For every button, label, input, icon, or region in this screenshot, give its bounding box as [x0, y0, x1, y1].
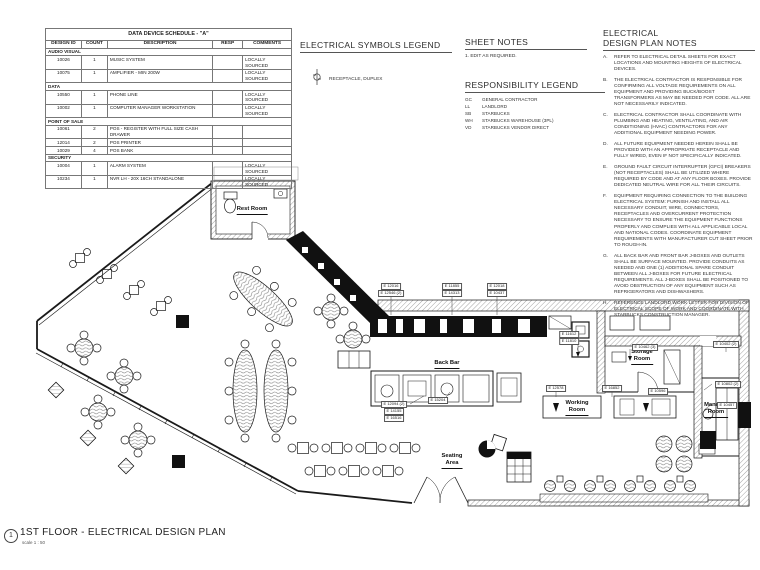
symbol-legend-item: RECEPTACLE, DUPLEX — [312, 69, 452, 90]
schedule-row: 100612POS - REGISTER WITH FULL SIZE CASH… — [46, 125, 292, 138]
entry-doors — [414, 477, 468, 503]
back-bar-counter — [286, 231, 547, 337]
north-symbol — [479, 434, 507, 457]
center-seating — [221, 258, 420, 477]
left-wing-seating — [48, 249, 189, 474]
front-bar — [338, 351, 521, 406]
design-notes-panel: ELECTRICAL DESIGN PLAN NOTES A.REFER TO … — [603, 28, 755, 324]
sheet-notes-list: 1. EDIT AS REQUIRED. — [465, 54, 587, 60]
responsibility-item: VDSTARBUCKS VENDOR DIRECT — [465, 125, 605, 132]
responsibility-item: LLLANDLORD — [465, 104, 605, 111]
design-note: A.REFER TO ELECTRICAL DETAIL SHEETS FOR … — [603, 55, 755, 73]
symbols-legend-panel: ELECTRICAL SYMBOLS LEGEND RECEPTACLE, DU… — [300, 40, 452, 90]
responsibility-legend-title: RESPONSIBILITY LEGEND — [465, 80, 605, 93]
design-note: D.ALL FUTURE EQUIPMENT NEEDED HEREIN SHA… — [603, 142, 755, 160]
schedule-title: DATA DEVICE SCHEDULE - "A" — [46, 29, 292, 41]
sheet-note: 1. EDIT AS REQUIRED. — [465, 54, 587, 60]
responsibility-legend-panel: RESPONSIBILITY LEGEND GCGENERAL CONTRACT… — [465, 80, 605, 131]
schedule-section-row: SECURITY — [46, 154, 292, 162]
schedule-row: 100261MUSIC SYSTEMLOCALLY SOURCED — [46, 56, 292, 69]
design-note: G.ALL BACK BAR AND FRONT BAR J-BOXES AND… — [603, 254, 755, 297]
responsibility-item: WHSTARBUCKS WAREHOUSE (3PL) — [465, 118, 605, 125]
schedule-row: 120142POS PRINTER — [46, 139, 292, 147]
plan-number-badge: 1 — [4, 529, 18, 543]
right-seating — [507, 431, 716, 502]
data-device-schedule-panel: DATA DEVICE SCHEDULE - "A"DESIGN IDCOUNT… — [45, 28, 292, 189]
schedule-row: 100294POS BANK — [46, 147, 292, 155]
drawing-sheet: DATA DEVICE SCHEDULE - "A"DESIGN IDCOUNT… — [0, 0, 760, 570]
schedule-row: 100751AMPLIFIER - MIN 200WLOCALLY SOURCE… — [46, 69, 292, 82]
schedule-row: 105501PHONE LINELOCALLY SOURCED — [46, 91, 292, 104]
responsibility-item: SBSTARBUCKS — [465, 111, 605, 118]
design-note: E.GROUND FAULT CIRCUIT INTERRUPTER (GFCI… — [603, 165, 755, 190]
plan-scale: scale 1 : 50 — [22, 540, 45, 545]
schedule-header-row: DESIGN IDCOUNTDESCRIPTIONRESPCOMMENTS — [46, 40, 292, 48]
schedule-section-row: POINT OF SALE — [46, 118, 292, 126]
design-notes-list: A.REFER TO ELECTRICAL DETAIL SHEETS FOR … — [603, 55, 755, 319]
duplex-receptacle-icon — [312, 69, 322, 90]
symbols-legend-title: ELECTRICAL SYMBOLS LEGEND — [300, 40, 452, 53]
schedule-table: DATA DEVICE SCHEDULE - "A"DESIGN IDCOUNT… — [45, 28, 292, 189]
design-notes-title-line2: DESIGN PLAN NOTES — [603, 38, 755, 48]
schedule-section-row: DATA — [46, 83, 292, 91]
design-note: C.ELECTRICAL CONTRACTOR SHALL COORDINATE… — [603, 113, 755, 138]
design-notes-title-line1: ELECTRICAL — [603, 28, 755, 38]
schedule-row: 102341NVR LH - 20X 16CH STANDALONELOCALL… — [46, 175, 292, 188]
symbols-list: RECEPTACLE, DUPLEX — [300, 69, 452, 90]
design-note: H.REFERENCE LANDLORD WORK LETTER FOR DIV… — [603, 301, 755, 319]
schedule-section-row: AUDIO VISUAL — [46, 48, 292, 56]
responsibility-item: GCGENERAL CONTRACTOR — [465, 97, 605, 104]
schedule-row: 100041ALARM SYSTEMLOCALLY SOURCED — [46, 162, 292, 175]
sheet-notes-panel: SHEET NOTES 1. EDIT AS REQUIRED. — [465, 37, 587, 60]
sheet-notes-title: SHEET NOTES — [465, 37, 587, 50]
design-note: F.EQUIPMENT REQUIRING CONNECTION TO THE … — [603, 194, 755, 249]
plan-title: 1ST FLOOR - ELECTRICAL DESIGN PLAN — [20, 527, 226, 538]
design-note: B.THE ELECTRICAL CONTRACTOR IS RESPONSIB… — [603, 78, 755, 109]
responsibility-list: GCGENERAL CONTRACTORLLLANDLORDSBSTARBUCK… — [465, 97, 605, 131]
schedule-row: 100021COMPUTER MANAGER WORKSTATIONLOCALL… — [46, 104, 292, 117]
